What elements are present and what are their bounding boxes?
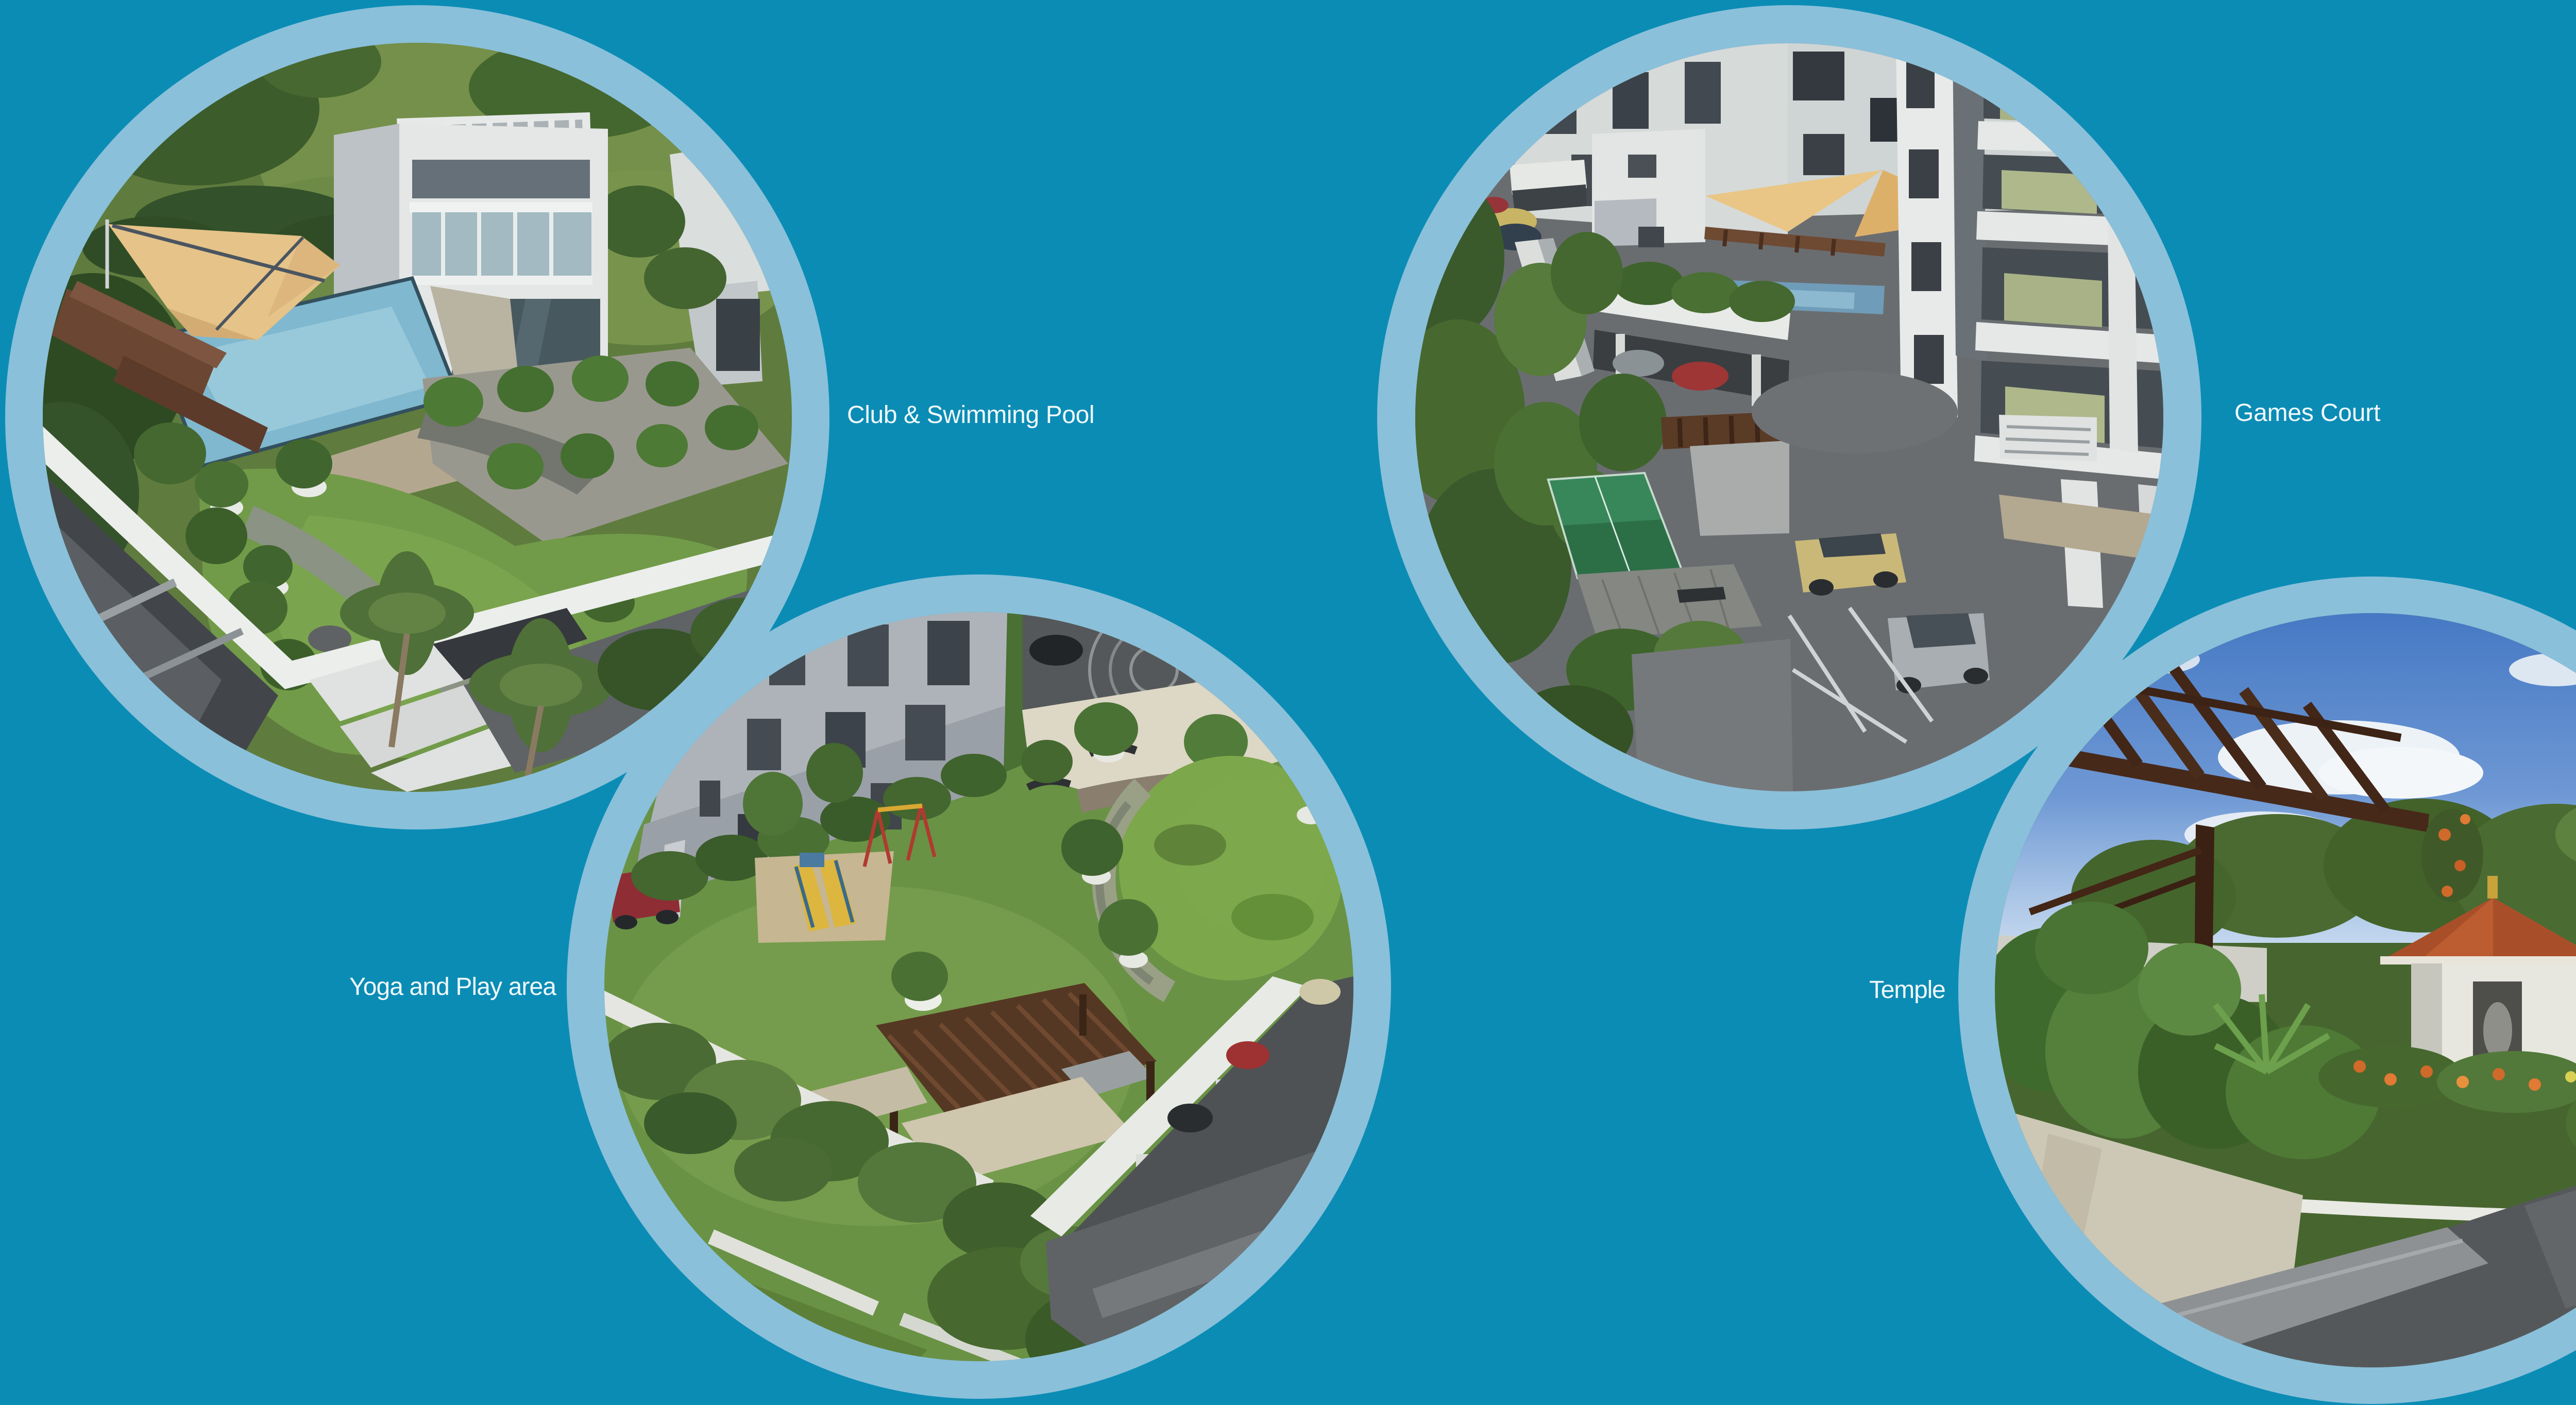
- svg-text:Club & Swimming Pool: Club & Swimming Pool: [847, 401, 1094, 429]
- svg-text:Yoga and Play area: Yoga and Play area: [349, 973, 556, 1001]
- svg-text:Temple: Temple: [1869, 976, 1945, 1004]
- svg-text:Games Court: Games Court: [2234, 399, 2380, 427]
